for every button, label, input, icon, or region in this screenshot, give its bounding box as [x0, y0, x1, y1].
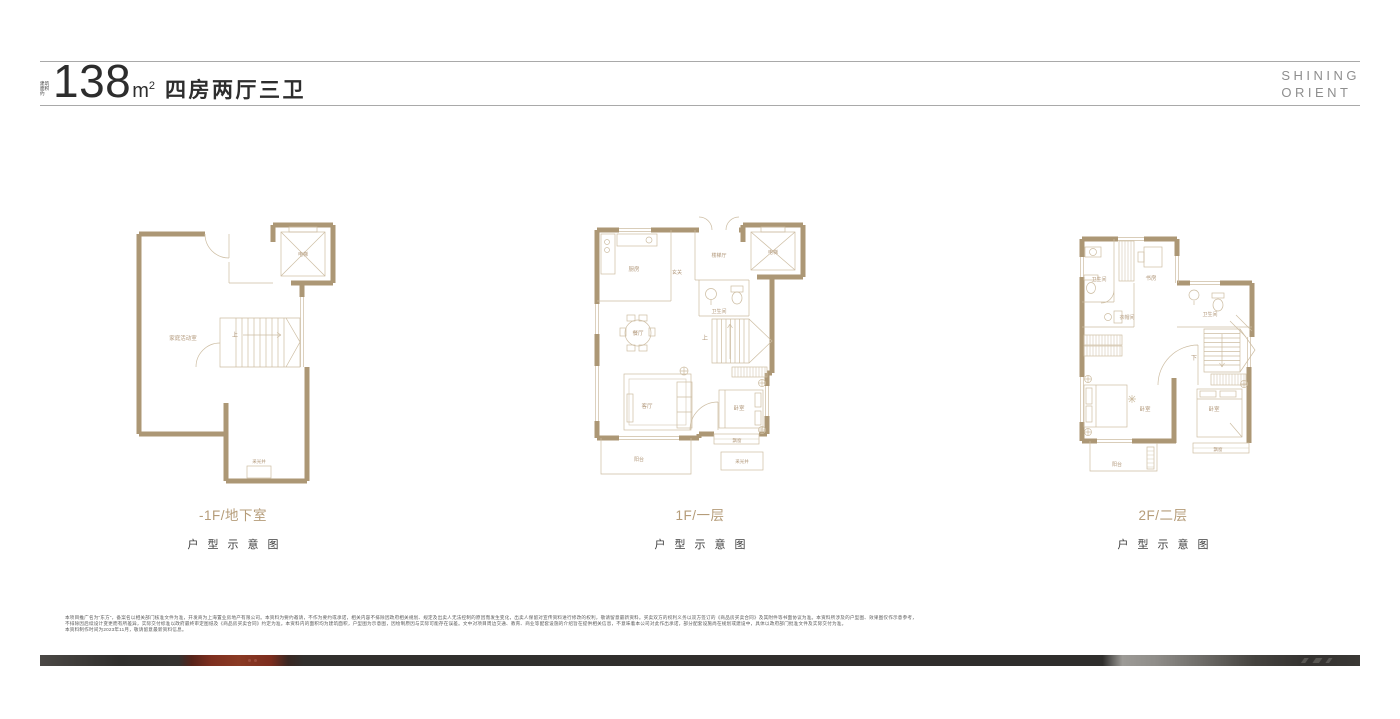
area-value: 138 [53, 63, 131, 101]
room-label-elevator: 电梯 [298, 251, 308, 258]
bed-icon: 卧室 [1197, 381, 1248, 438]
footer-gradient-bar [40, 655, 1360, 666]
disclaimer-line3: 本资料制作时间为2023年11月，敬请留意最新资料信息。 [65, 627, 1110, 633]
area-unit-sup: 2 [149, 80, 155, 92]
balcony-icon: 阳台 [1090, 441, 1157, 471]
brand-line2: ORIENT [1281, 84, 1360, 101]
elevator-icon: 电梯 [743, 225, 803, 277]
brand-line1: SHINING [1281, 67, 1360, 84]
stairs-icon: 上 [196, 318, 300, 367]
room-label-study: 书房 [1145, 274, 1157, 282]
wardrobe-icon [1084, 335, 1122, 356]
stairs-icon: 上 [702, 319, 772, 363]
room-label-down: 下 [1191, 355, 1197, 362]
living-room-icons: 客厅 [624, 367, 692, 430]
wardrobe-icon [732, 367, 767, 377]
room-label-balcony: 阳台 [1112, 461, 1122, 468]
floor-label-basement: -1F/地下室 [133, 504, 333, 524]
closet-icon: 衣帽间 [1082, 283, 1135, 327]
balcony-icon: 阳台 [601, 438, 691, 474]
area-block: 建筑面积约 138 m2 四房两厅三卫 [40, 63, 306, 104]
room-label-up: 上 [702, 334, 708, 342]
door-arc-icon [690, 402, 718, 430]
room-label-dining: 餐厅 [632, 329, 644, 337]
door-arc-icon [1158, 345, 1198, 385]
room-label-lightwell: 采光井 [735, 458, 749, 465]
room-label-closet: 衣帽间 [1119, 314, 1134, 321]
room-label-bedroom: 卧室 [733, 404, 745, 412]
lightwell-icon: 采光井 [721, 452, 763, 470]
caption-first-floor: 户型示意图 [590, 536, 810, 552]
bay-window-icon: 飘窗 [714, 434, 759, 444]
room-label-bedroom-b: 卧室 [1208, 405, 1220, 413]
kitchen-icon: 厨房 [597, 230, 671, 301]
bathroom-icon: 卫生间 [1082, 239, 1114, 303]
floor-label-first-floor: 1F/一层 [600, 504, 800, 524]
room-label-bath: 卫生间 [711, 308, 726, 315]
room-label-lightwell: 采光井 [252, 458, 266, 465]
room-label-bath-a: 卫生间 [1091, 276, 1106, 283]
room-label-elevator: 电梯 [768, 249, 778, 256]
layout-text: 四房两厅三卫 [165, 80, 306, 101]
brochure-page: 建筑面积约 138 m2 四房两厅三卫 SHINING ORIENT 电梯 [0, 0, 1400, 719]
stairs-icon: 下 [1191, 329, 1255, 385]
bed-icon: 卧室 [719, 380, 766, 434]
room-label-bay-window: 飘窗 [1214, 446, 1223, 453]
area-unit: m2 [132, 81, 155, 101]
room-label-bath-b: 卫生间 [1202, 311, 1217, 318]
bed-icon: 卧室 [1084, 376, 1151, 436]
study-icons: 书房 [1119, 241, 1162, 282]
elevator-icon: 电梯 [273, 225, 333, 283]
dining-table-icon: 餐厅 [620, 315, 655, 351]
room-label-bedroom-a: 卧室 [1139, 405, 1151, 413]
floorplan-basement: 电梯 上 采光井 家庭活动室 [131, 222, 336, 487]
lightwell-icon: 采光井 [247, 458, 271, 478]
floor-label-second-floor: 2F/二层 [1063, 504, 1263, 524]
disclaimer-text: 本项目推广名为“东方”，备案名以相关部门核准文件为准，开发商为上海置业房地产有限… [65, 615, 1110, 633]
room-label-balcony: 阳台 [634, 456, 644, 463]
caption-basement: 户型示意图 [123, 536, 343, 552]
brand-logo: SHINING ORIENT [1281, 67, 1360, 101]
bathroom-icon: 卫生间 [699, 280, 749, 316]
floorplan-first-floor: 电梯 厨房 玄关 楼梯厅 卫生间 上 [591, 216, 813, 488]
area-prefix-label: 建筑面积约 [40, 81, 51, 97]
door-arc-icon [205, 234, 229, 258]
floorplan-second-floor: 卫生间 书房 衣帽间 卫生间 下 [1072, 227, 1262, 477]
room-label-entry: 玄关 [672, 269, 682, 276]
room-label-up: 上 [232, 331, 238, 339]
room-label-bay-window: 飘窗 [733, 437, 742, 444]
bay-window-icon: 飘窗 [1193, 443, 1249, 453]
header: 建筑面积约 138 m2 四房两厅三卫 SHINING ORIENT [40, 61, 1360, 106]
room-label-kitchen: 厨房 [628, 265, 640, 273]
room-label-living: 客厅 [641, 402, 653, 410]
double-door-icon [699, 217, 739, 230]
caption-second-floor: 户型示意图 [1053, 536, 1273, 552]
area-unit-base: m [132, 80, 149, 102]
room-label-main: 家庭活动室 [169, 334, 197, 342]
room-label-stair-hall: 楼梯厅 [711, 252, 726, 259]
